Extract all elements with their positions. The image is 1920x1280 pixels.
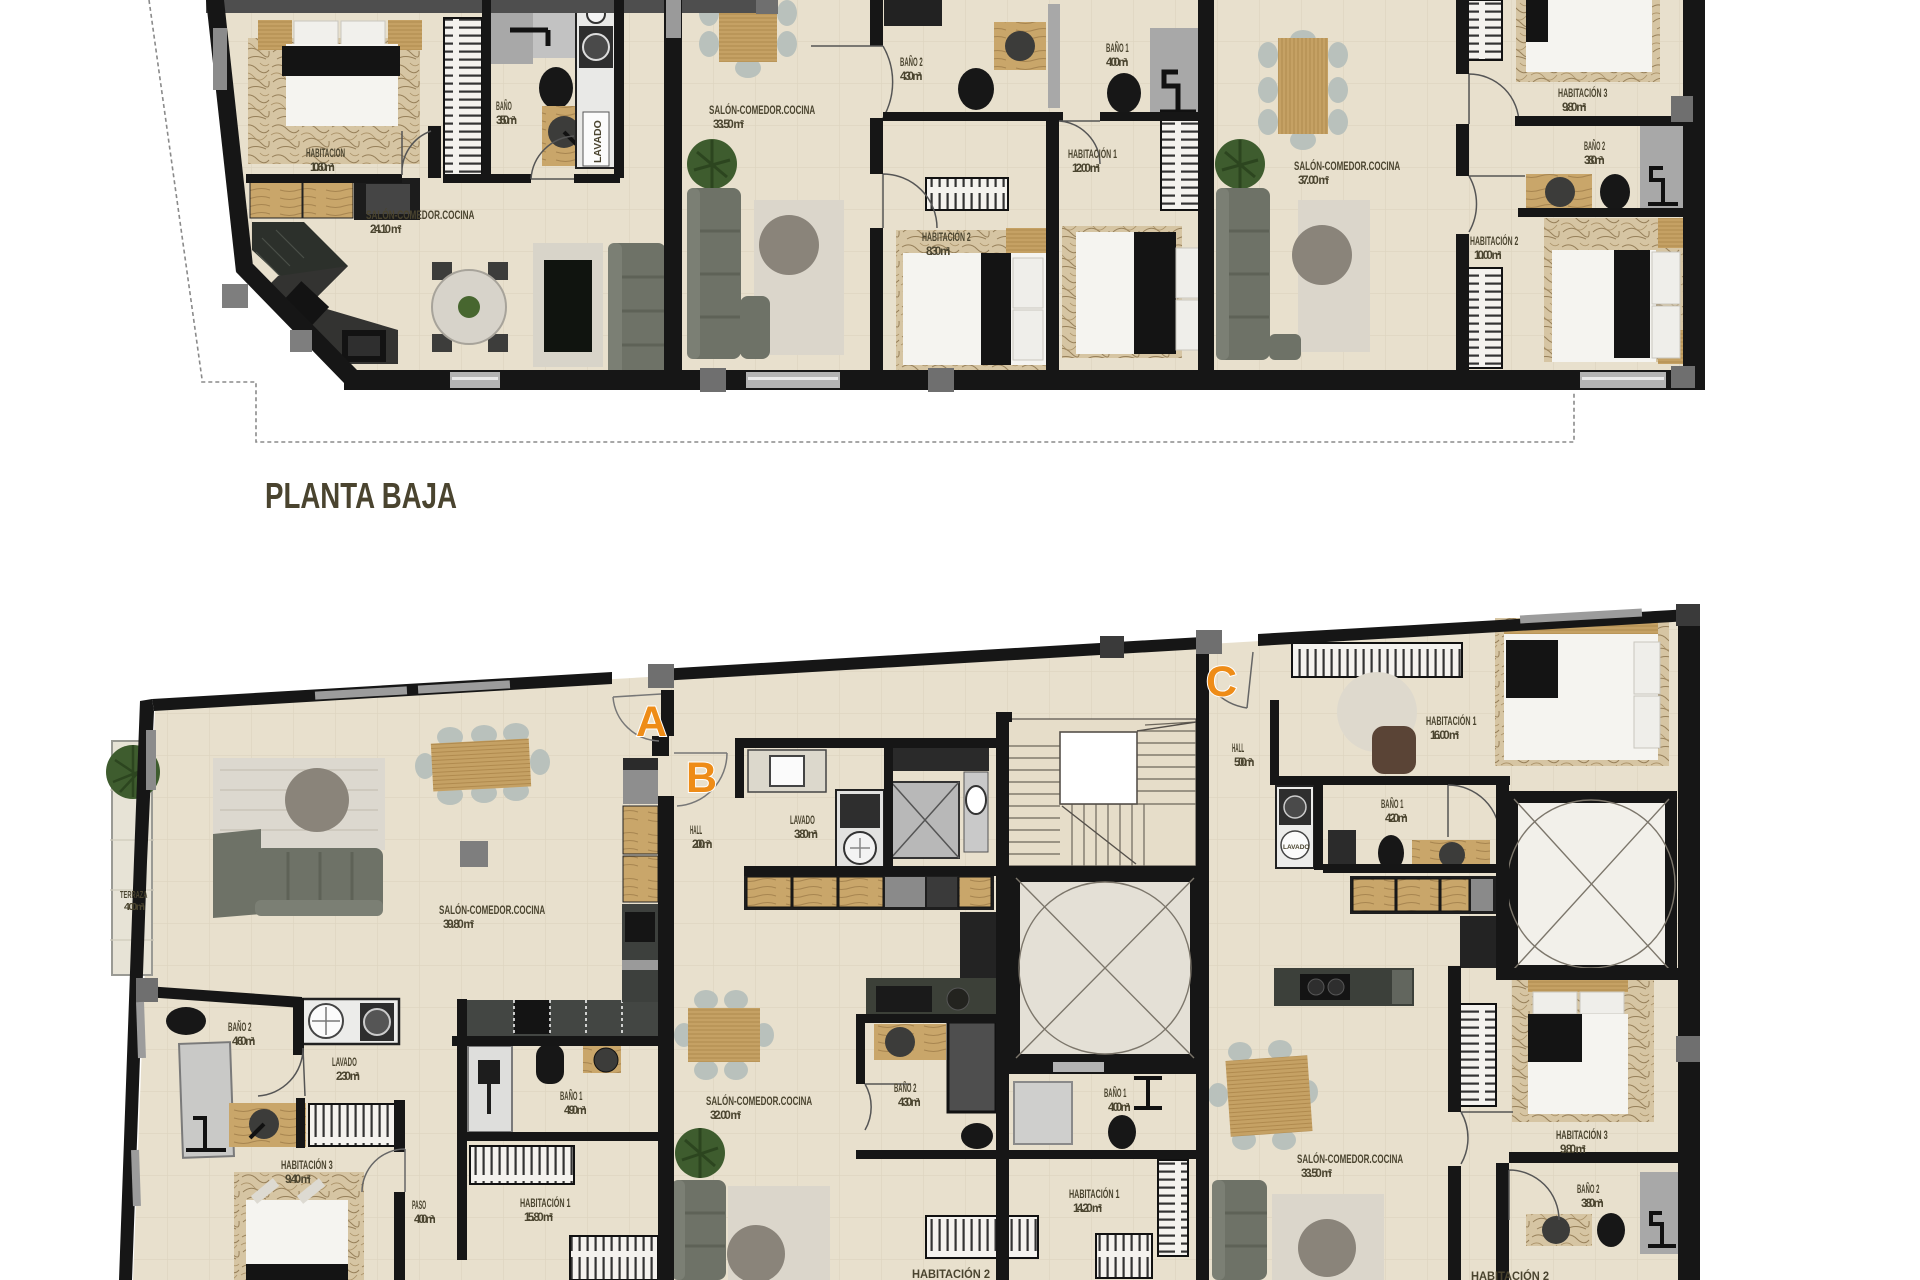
svg-text:B: B bbox=[686, 754, 717, 802]
svg-text:A: A bbox=[636, 698, 667, 746]
svg-text:LAVADO: LAVADO bbox=[592, 120, 604, 163]
svg-text:HABITACIÓN 2: HABITACIÓN 2 bbox=[912, 1268, 990, 1280]
svg-text:TERRAZA4.00 m²: TERRAZA4.00 m² bbox=[120, 889, 148, 913]
svg-text:C: C bbox=[1206, 658, 1237, 706]
svg-text:PLANTA BAJA: PLANTA BAJA bbox=[265, 475, 457, 516]
svg-text:LAVADO: LAVADO bbox=[1283, 844, 1309, 851]
svg-text:HABITACIÓN 2: HABITACIÓN 2 bbox=[1471, 1270, 1549, 1280]
